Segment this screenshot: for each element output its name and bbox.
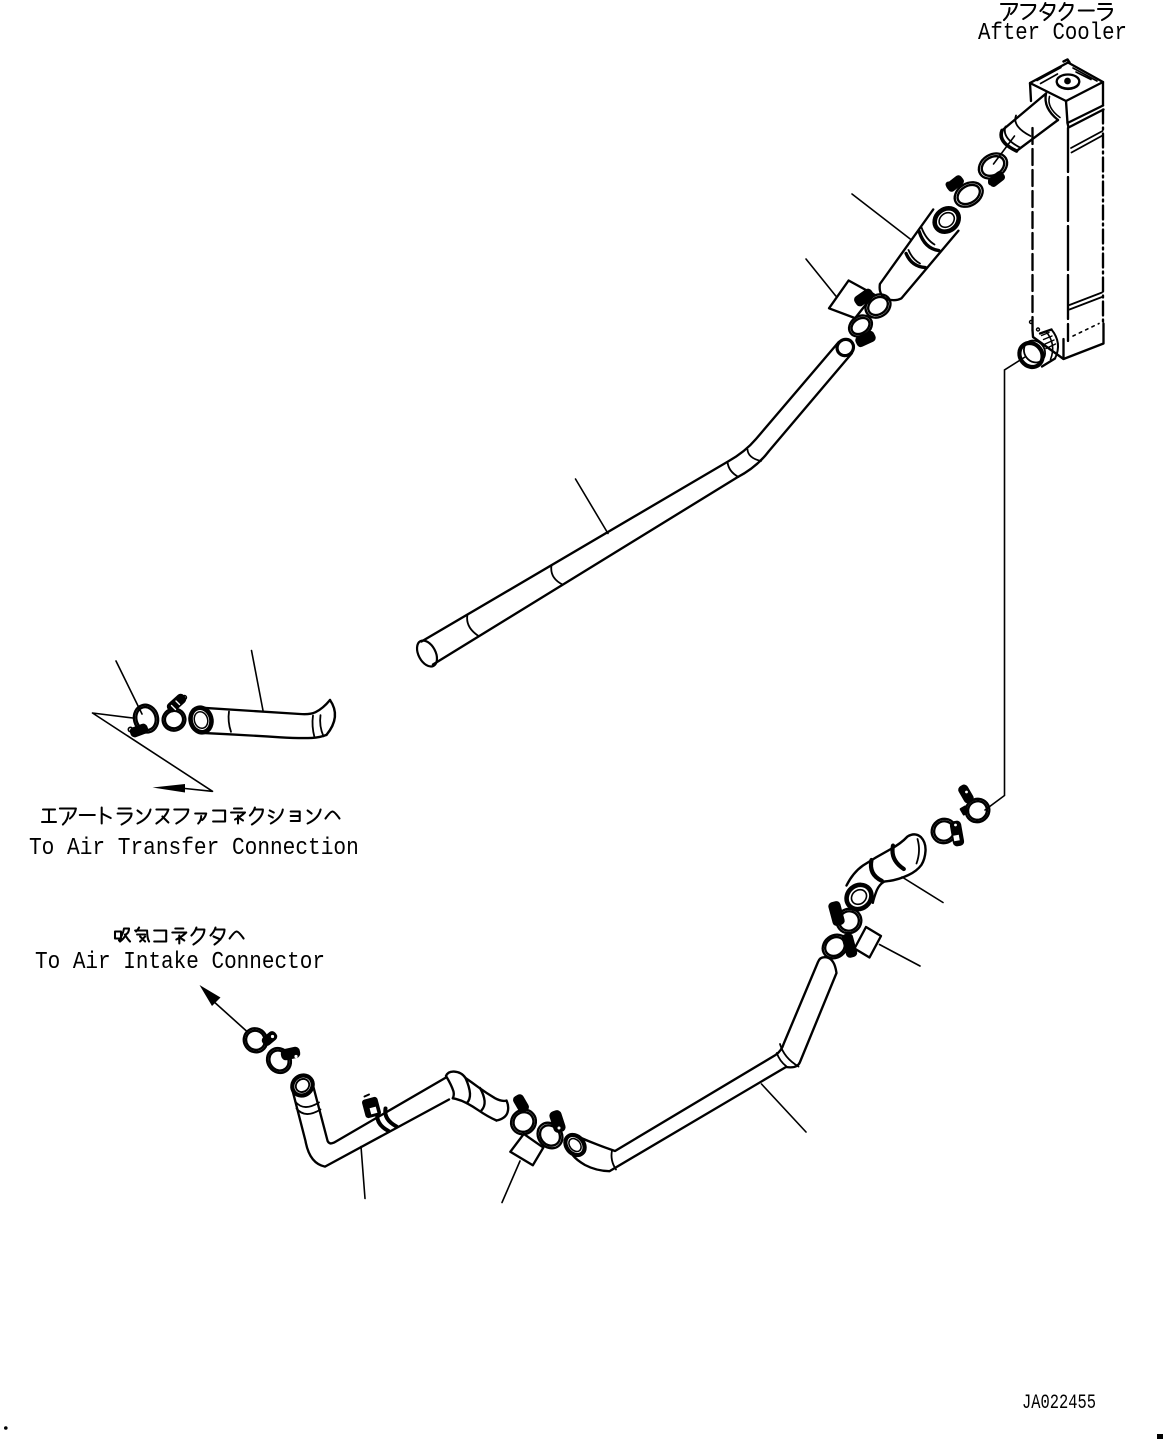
- svg-text:To Air Transfer Connection: To Air Transfer Connection: [29, 834, 359, 862]
- svg-text:To Air Intake Connector: To Air Intake Connector: [35, 948, 325, 976]
- svg-text:After Cooler: After Cooler: [978, 19, 1127, 47]
- svg-text:JA022455: JA022455: [1022, 1392, 1096, 1414]
